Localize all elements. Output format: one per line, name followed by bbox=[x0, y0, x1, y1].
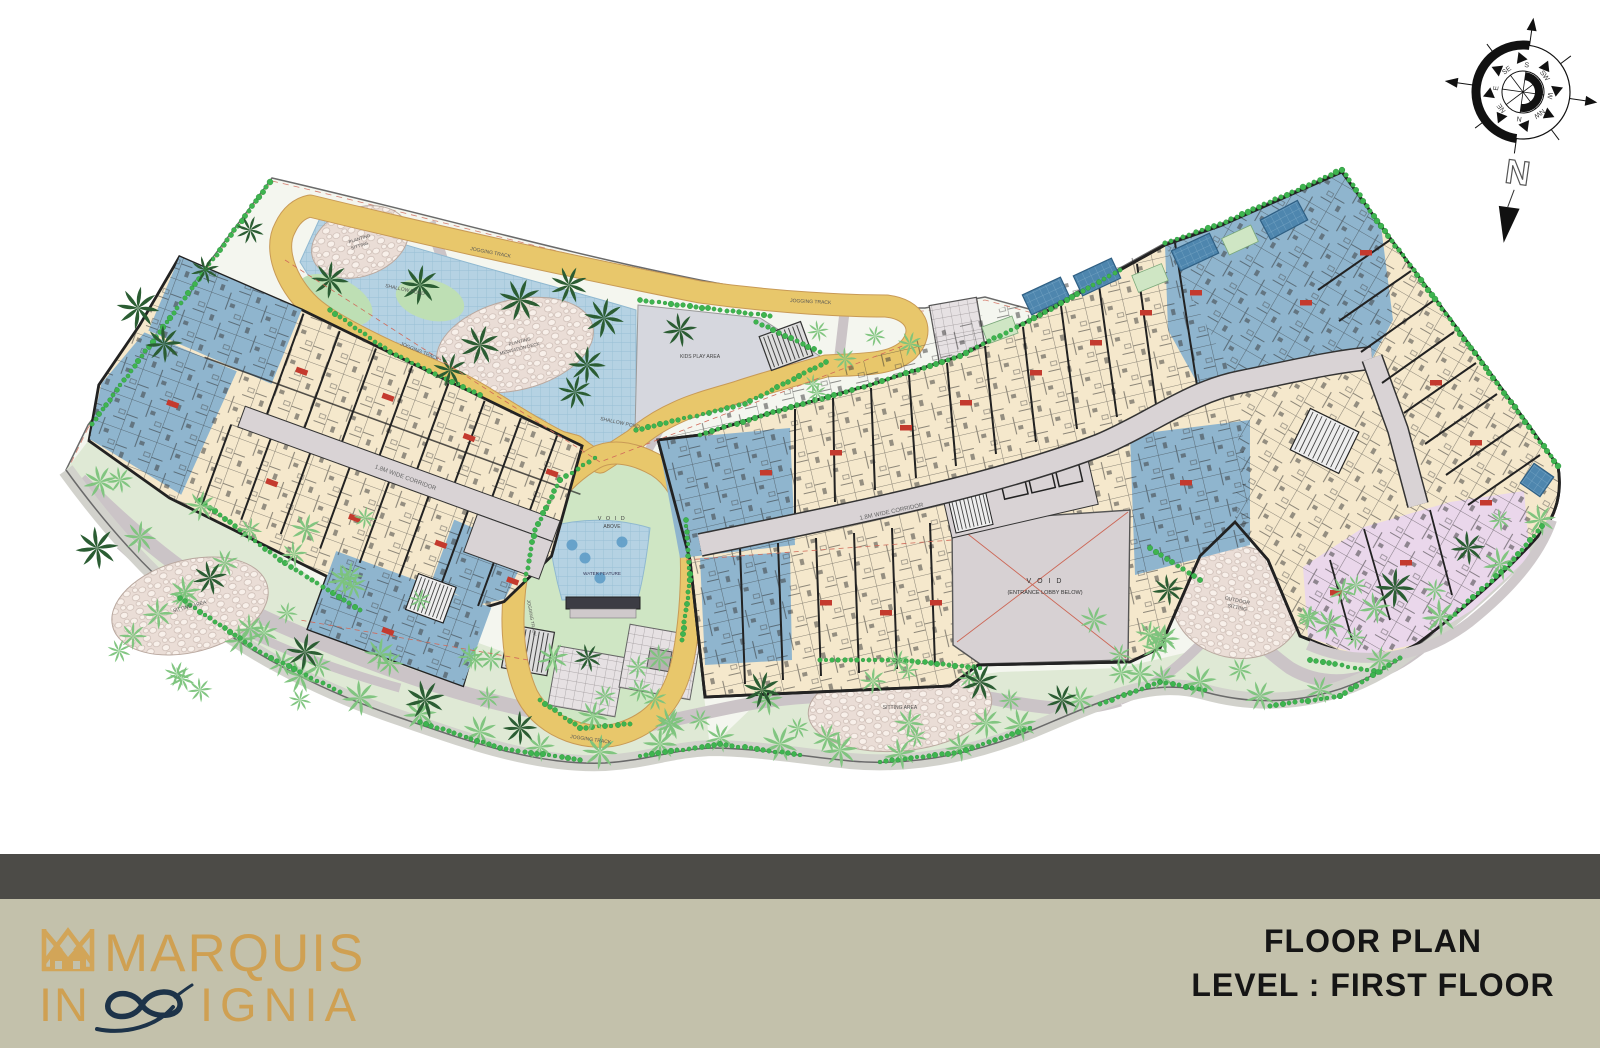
svg-text:KIDS PLAY AREA: KIDS PLAY AREA bbox=[680, 354, 721, 360]
svg-text:V O I D: V O I D bbox=[1027, 578, 1064, 585]
svg-text:V O I D: V O I D bbox=[598, 516, 627, 522]
svg-text:SITTING AREA: SITTING AREA bbox=[883, 705, 918, 711]
svg-text:IGNIA: IGNIA bbox=[200, 978, 363, 1031]
svg-text:LEVEL : FIRST FLOOR: LEVEL : FIRST FLOOR bbox=[1191, 967, 1554, 1003]
svg-text:WATER FEATURE: WATER FEATURE bbox=[583, 571, 621, 576]
svg-text:IN: IN bbox=[39, 978, 90, 1031]
svg-text:(ENTRANCE LOBBY BELOW): (ENTRANCE LOBBY BELOW) bbox=[1007, 590, 1082, 596]
svg-text:N: N bbox=[1516, 114, 1522, 122]
svg-text:MARQUIS: MARQUIS bbox=[104, 924, 365, 983]
svg-text:FLOOR PLAN: FLOOR PLAN bbox=[1264, 923, 1482, 959]
svg-text:ABOVE: ABOVE bbox=[603, 524, 621, 530]
svg-text:N: N bbox=[1503, 153, 1533, 194]
